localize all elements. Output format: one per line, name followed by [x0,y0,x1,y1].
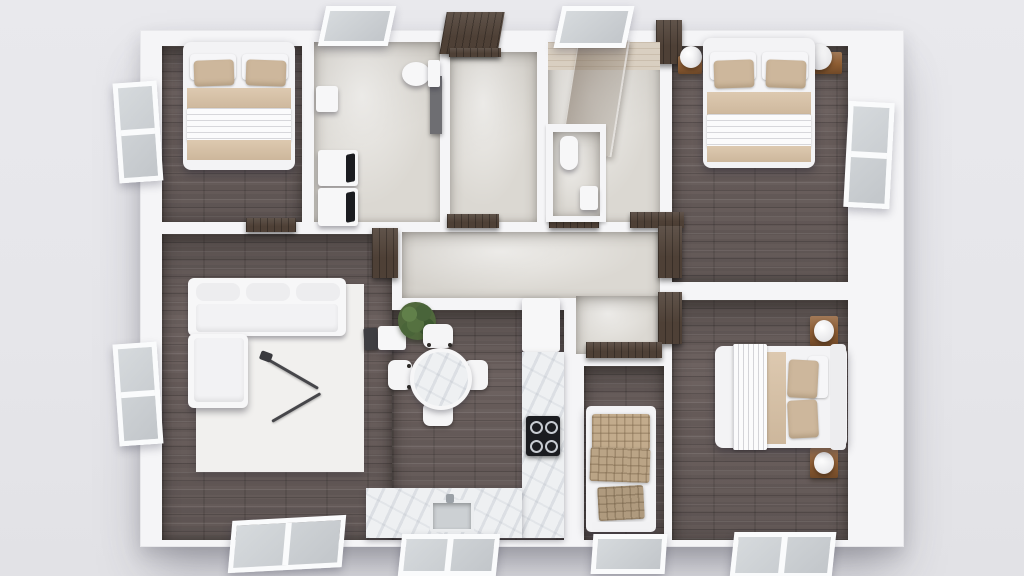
wc-cabinet [580,186,598,210]
hallway-floor [402,232,660,298]
window-top-bathroom [318,6,397,46]
bedroom-2-door-panel [658,226,682,278]
kids-blanket-mid [589,447,650,483]
kids-bedroom-door-lintel [586,342,662,358]
bed-1-pillow-beige-left [194,59,235,86]
sofa-back-cushion-2 [246,283,290,301]
lamp-3-top [814,320,834,342]
burner-4 [545,440,558,453]
bed-3-headboard [830,344,846,450]
dining-chair-west [388,360,412,390]
bed-3-white-throw [733,344,767,450]
toilet-1-bowl [402,62,430,86]
bed-2-pillow-beige-left [714,59,755,88]
washer [318,150,358,186]
window-top-shower [554,6,635,48]
window-left-top [113,81,164,184]
wall-cabinet [316,86,338,112]
front-door-threshold [449,48,501,57]
entry-door-lintel [447,214,499,228]
fridge-cabinet [522,298,560,352]
bedroom-3-door-panel [658,292,682,344]
burner-1 [530,421,543,434]
living-room-door-panel [372,228,398,278]
burner-2 [545,421,558,434]
window-bottom-living [228,515,346,573]
kids-bed-foot [592,522,650,530]
bedroom-1-door-lintel [246,218,296,232]
sink-faucet [446,494,454,503]
bed-3-beige-runner [764,352,786,444]
kids-blanket-top [592,414,650,450]
sofa-back-cushion-1 [196,283,240,301]
sofa-seat-cushions [196,304,338,332]
window-bottom-kids [591,534,668,574]
entry-hall-floor [450,52,537,222]
speaker [363,328,379,351]
dining-chair-north [423,324,453,348]
window-bottom-bedroom-3 [730,532,837,576]
lamp-3-bottom [814,452,834,474]
dryer [318,188,358,226]
window-left-bottom [112,342,163,447]
window-right [843,101,894,209]
bed-1-duvet-band [187,88,291,110]
bed-1-pillow-beige-right [246,59,287,86]
bed-2-foot-band [707,146,811,162]
bed-1-sheet [187,108,291,142]
toilet-2 [560,136,578,170]
bed-1-foot-band [187,140,291,160]
bed-2-pillow-beige-right [766,59,807,88]
bed-2-sheet [707,114,811,148]
window-bottom-kitchen [398,534,500,576]
bed-2-duvet-band [707,92,811,116]
bed-3-pillow-beige-top [787,359,819,399]
dining-table [410,348,472,410]
floor-plan-canvas [0,0,1024,576]
toilet-1-tank [428,60,440,87]
kitchen-sink [430,500,474,532]
sofa-back-cushion-3 [296,283,340,301]
sofa-chaise-cushion [194,338,244,402]
sphere-lamp-left [680,46,702,68]
kids-pillow [597,485,645,521]
burner-3 [530,440,543,453]
bed-3-pillow-beige-bottom [787,399,819,439]
